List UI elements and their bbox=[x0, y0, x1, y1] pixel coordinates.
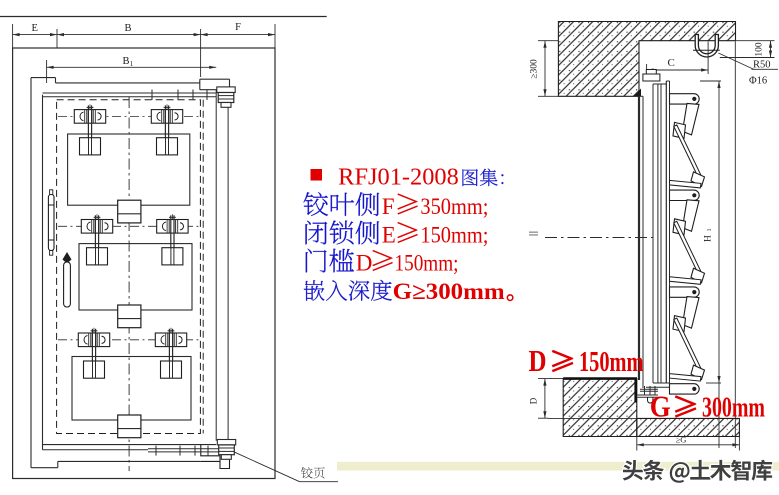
svg-text:F: F bbox=[382, 194, 395, 219]
svg-text:G≥300mm: G≥300mm bbox=[393, 279, 505, 304]
svg-text:1: 1 bbox=[706, 228, 713, 231]
svg-text:RFJ01-2008: RFJ01-2008 bbox=[338, 165, 459, 191]
svg-text:150mm: 150mm bbox=[579, 346, 644, 378]
svg-text:D: D bbox=[356, 251, 373, 276]
svg-text:B: B bbox=[122, 56, 129, 67]
svg-text:G: G bbox=[650, 389, 671, 424]
svg-text:H: H bbox=[704, 235, 714, 242]
svg-text:B: B bbox=[124, 23, 131, 34]
svg-text:≥G: ≥G bbox=[676, 435, 687, 445]
svg-text:E: E bbox=[382, 223, 396, 248]
svg-text:350mm;: 350mm; bbox=[420, 194, 488, 219]
svg-text:1: 1 bbox=[130, 60, 134, 68]
svg-text:≥300: ≥300 bbox=[530, 59, 540, 79]
svg-text:D: D bbox=[529, 343, 547, 378]
svg-text:D: D bbox=[529, 397, 539, 404]
svg-text:300mm: 300mm bbox=[702, 392, 765, 424]
svg-text:100: 100 bbox=[755, 42, 765, 57]
svg-text:E: E bbox=[31, 23, 37, 34]
svg-text:C: C bbox=[668, 57, 675, 69]
svg-text:R50: R50 bbox=[753, 60, 771, 71]
svg-text:150mm;: 150mm; bbox=[420, 223, 488, 248]
svg-text:F: F bbox=[235, 22, 241, 33]
svg-text:150mm;: 150mm; bbox=[395, 251, 459, 276]
svg-text:Φ16: Φ16 bbox=[749, 76, 767, 87]
